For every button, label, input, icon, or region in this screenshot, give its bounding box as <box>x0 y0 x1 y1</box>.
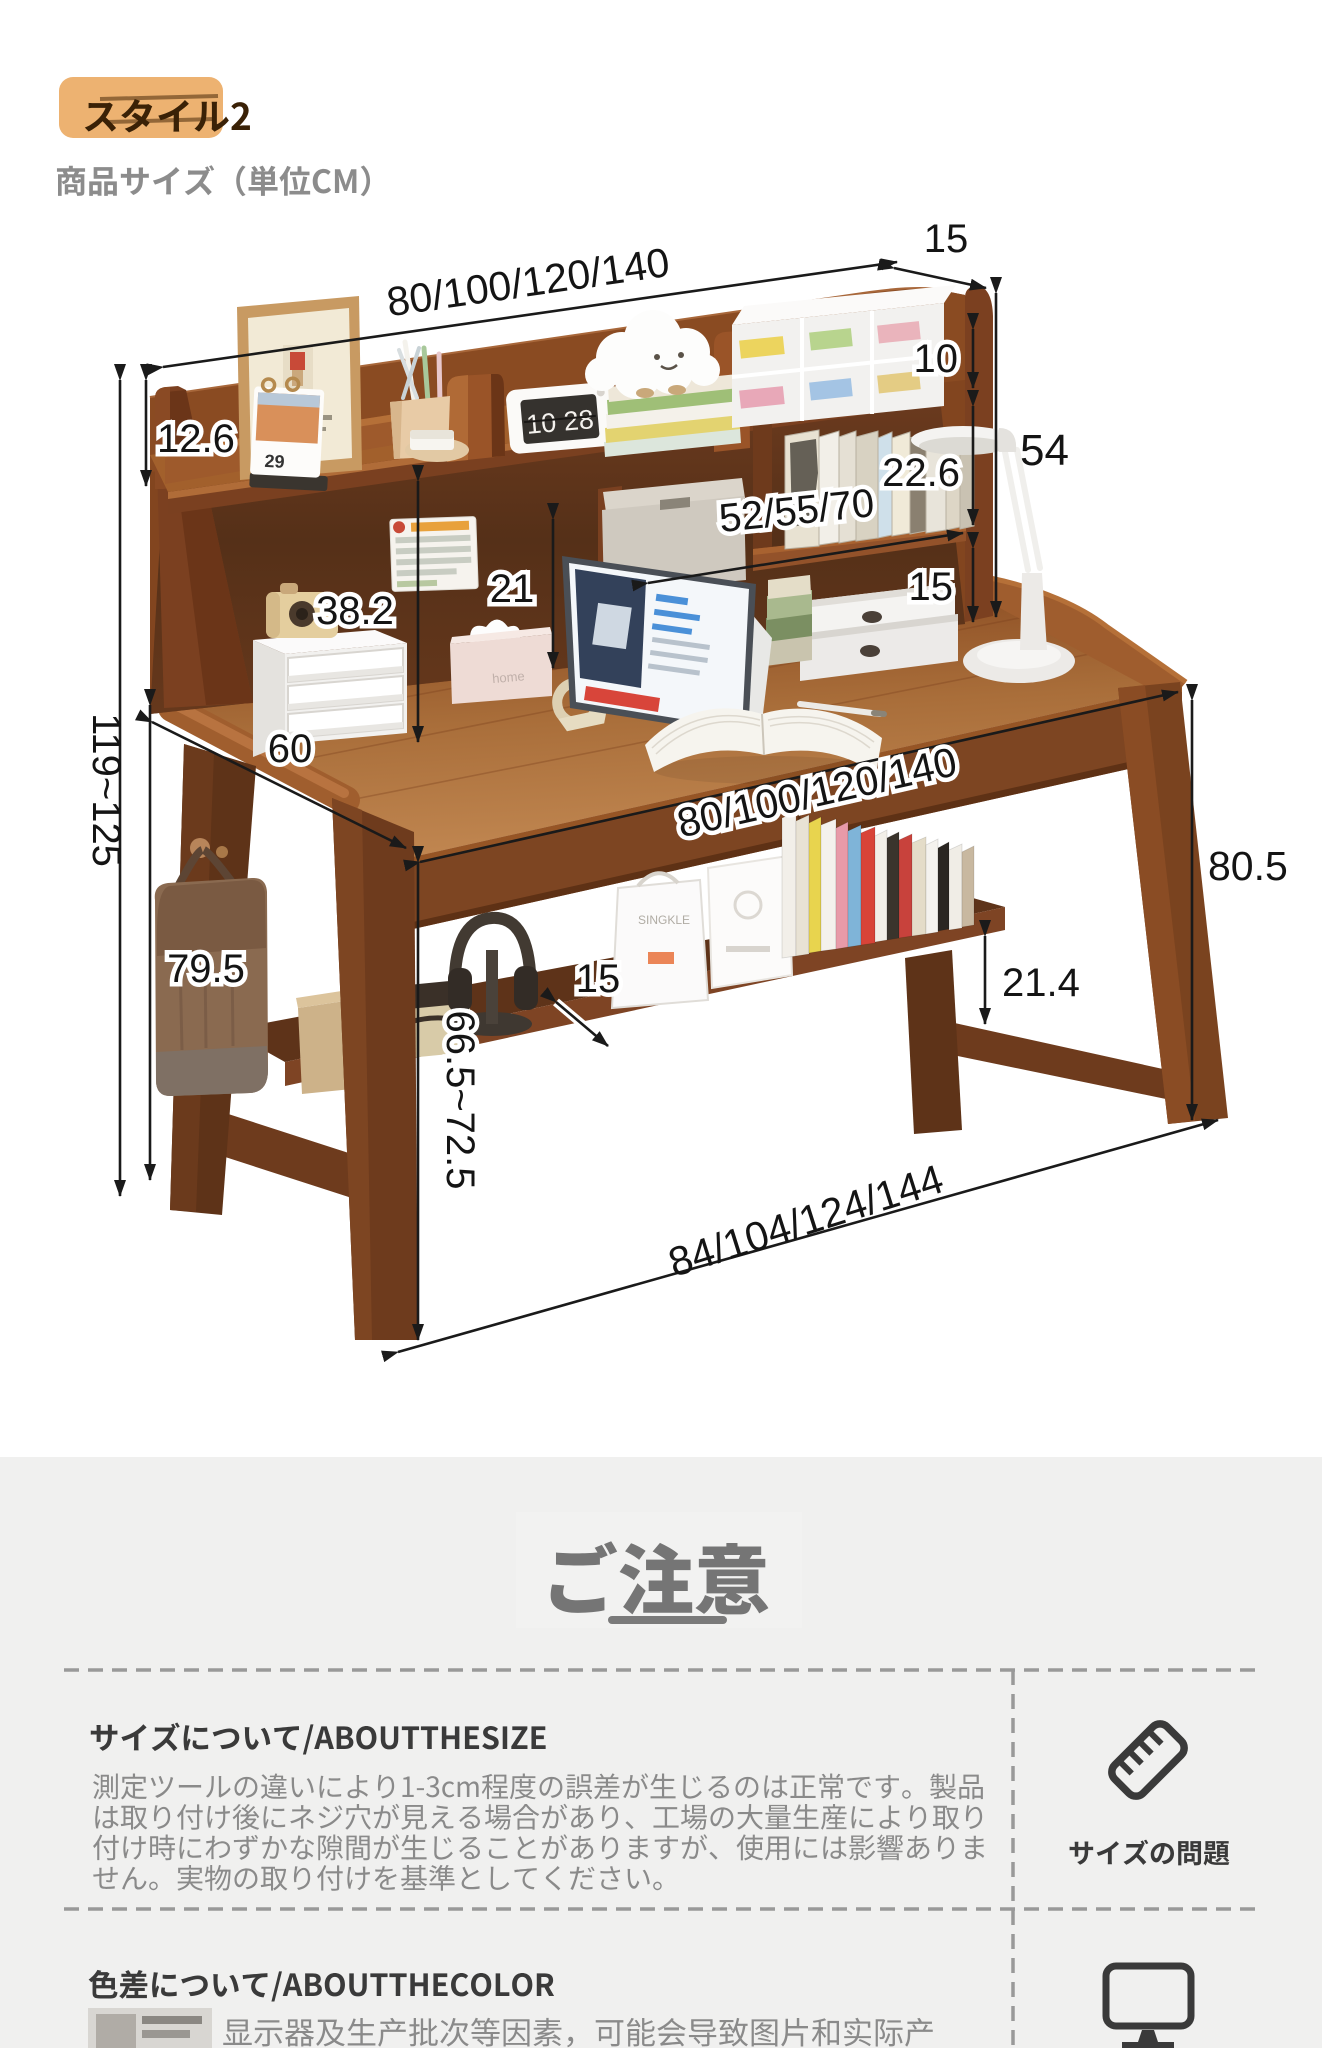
svg-text:80.5: 80.5 <box>1208 843 1288 889</box>
svg-text:80/100/120/140: 80/100/120/140 <box>384 239 673 325</box>
svg-text:15: 15 <box>924 217 969 261</box>
svg-text:21: 21 <box>490 567 535 611</box>
svg-text:38.2: 38.2 <box>316 589 394 633</box>
svg-text:119~125: 119~125 <box>84 713 128 867</box>
svg-text:15: 15 <box>576 957 621 1001</box>
svg-text:15: 15 <box>909 565 954 609</box>
svg-text:54: 54 <box>1020 426 1069 475</box>
svg-text:home: home <box>492 668 526 686</box>
svg-text:22.6: 22.6 <box>882 451 960 495</box>
svg-text:60: 60 <box>268 727 313 771</box>
svg-text:10: 10 <box>914 337 959 381</box>
svg-text:29: 29 <box>264 451 285 472</box>
svg-text:66.5~72.5: 66.5~72.5 <box>438 1010 482 1189</box>
svg-text:21.4: 21.4 <box>1002 961 1080 1005</box>
svg-text:79.5: 79.5 <box>167 947 245 991</box>
svg-text:84/104/124/144: 84/104/124/144 <box>663 1156 949 1286</box>
svg-text:12.6: 12.6 <box>157 417 235 461</box>
svg-text:SINGKLE: SINGKLE <box>638 913 690 927</box>
